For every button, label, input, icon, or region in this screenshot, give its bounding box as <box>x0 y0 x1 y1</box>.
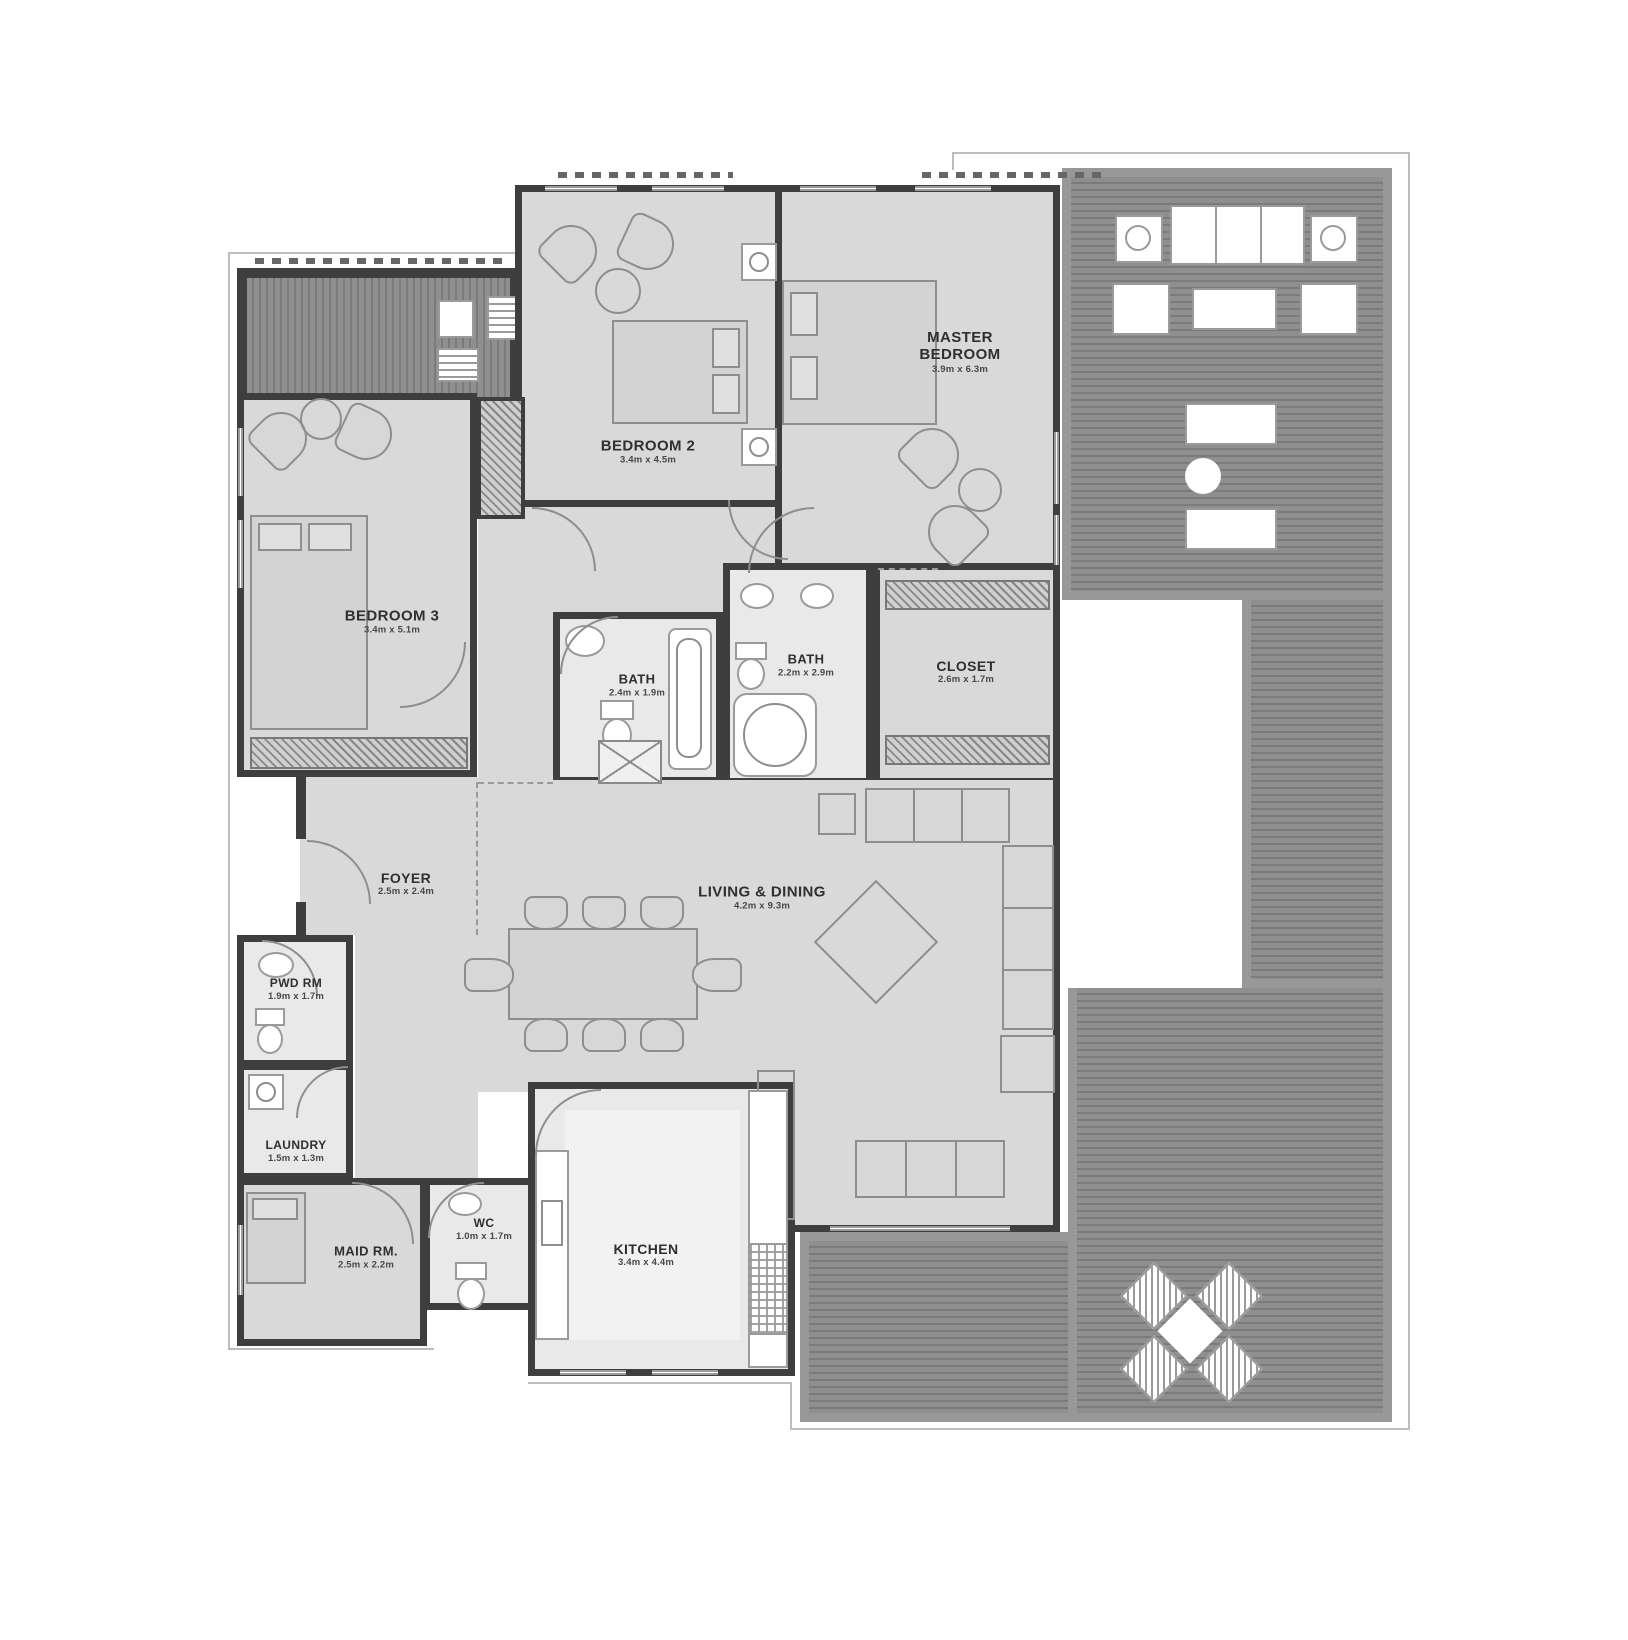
room-dims: 4.2m x 9.3m <box>698 902 826 913</box>
living-sofa-top <box>865 788 1010 843</box>
room-name: BEDROOM 3 <box>345 607 439 624</box>
window <box>238 1225 243 1295</box>
wardrobe-rail <box>885 735 1050 765</box>
label-living-dining: LIVING & DINING 4.2m x 9.3m <box>698 883 826 912</box>
terrace-planter <box>1115 215 1163 263</box>
room-name: MAID RM. <box>334 1244 398 1259</box>
floor-plan: MASTER BEDROOM 3.9m x 6.3m BEDROOM 2 3.4… <box>0 0 1628 1640</box>
dining-chair <box>464 958 514 992</box>
window <box>652 186 724 191</box>
window <box>1054 515 1059 565</box>
balcony-equipment-unit <box>438 300 474 338</box>
bedroom3-pillow <box>308 523 352 551</box>
bedroom3-side-table <box>300 398 342 440</box>
bathtub-basin <box>676 638 702 758</box>
room-dims: 2.5m x 2.2m <box>334 1261 398 1272</box>
property-line <box>228 252 230 1348</box>
master-pillow <box>790 292 818 336</box>
terrace-round-table <box>1185 458 1221 494</box>
terrace-coffee-table <box>1192 288 1277 330</box>
entry-wall <box>296 777 306 839</box>
terrace-deck-bottom <box>800 1232 1068 1422</box>
bedroom3-pillow <box>258 523 302 551</box>
stove-icon <box>748 1243 788 1335</box>
room-dims: 3.4m x 4.5m <box>601 456 695 467</box>
toilet-bowl <box>457 1278 485 1310</box>
property-line <box>952 152 954 170</box>
label-kitchen: KITCHEN 3.4m x 4.4m <box>613 1241 678 1269</box>
opening-dashed <box>878 568 938 572</box>
room-name: FOYER <box>381 870 431 886</box>
dining-table <box>508 928 698 1020</box>
bedroom2-side-table <box>595 268 641 314</box>
nightstand <box>741 243 777 281</box>
label-pwd: PWD RM 1.9m x 1.7m <box>268 977 324 1003</box>
room-dims: 3.4m x 4.4m <box>613 1258 678 1269</box>
toilet-icon <box>600 700 634 720</box>
window <box>800 186 876 191</box>
property-line <box>790 1382 792 1430</box>
dining-chair <box>640 896 684 930</box>
room-name: BATH <box>788 652 825 667</box>
window <box>915 186 991 191</box>
label-foyer: FOYER 2.5m x 2.4m <box>378 870 434 898</box>
washer-drum <box>256 1082 276 1102</box>
opening-dashed <box>476 782 480 935</box>
label-bedroom2: BEDROOM 2 3.4m x 4.5m <box>601 437 695 466</box>
plant-icon <box>1125 225 1151 251</box>
room-dims: 3.9m x 6.3m <box>894 364 1026 375</box>
railing <box>558 172 733 178</box>
entry-wall <box>296 902 306 940</box>
sliding-door <box>830 1226 1010 1231</box>
room-dims: 1.5m x 1.3m <box>265 1154 326 1165</box>
terrace-sun-lounger <box>1185 508 1277 550</box>
dining-chair <box>582 1018 626 1052</box>
dining-chair <box>692 958 742 992</box>
shaft-closet <box>477 397 525 519</box>
lamp-icon <box>749 437 769 457</box>
terrace-planter <box>1310 215 1358 263</box>
window <box>238 428 243 496</box>
room-dims: 1.9m x 1.7m <box>268 992 324 1003</box>
room-name: WC <box>474 1216 495 1230</box>
room-name: LAUNDRY <box>265 1138 326 1152</box>
sink-icon <box>800 583 834 609</box>
room-dims: 2.4m x 1.9m <box>609 689 665 700</box>
terrace-lounge-chair <box>1300 283 1358 335</box>
corridor-floor <box>355 935 478 1178</box>
plant-icon <box>1320 225 1346 251</box>
label-bath-master: BATH 2.2m x 2.9m <box>778 653 834 680</box>
bathtub <box>668 628 712 770</box>
opening-dashed <box>478 782 553 786</box>
bedroom2-pillow <box>712 328 740 368</box>
property-line <box>228 252 520 254</box>
room-name: PWD RM <box>270 976 322 990</box>
property-line <box>790 1428 1410 1430</box>
room-dims: 1.0m x 1.7m <box>456 1232 512 1243</box>
window <box>545 186 617 191</box>
railing <box>922 172 1107 178</box>
window <box>560 1370 626 1375</box>
dining-chair <box>640 1018 684 1052</box>
toilet-bowl <box>737 658 765 690</box>
bathtub <box>733 693 817 777</box>
dining-chair <box>524 1018 568 1052</box>
wardrobe-rail <box>250 737 468 769</box>
shower-hatch <box>598 740 662 784</box>
room-name: LIVING & DINING <box>698 883 826 900</box>
master-side-table <box>958 468 1002 512</box>
room-name: BATH <box>619 672 656 687</box>
toilet-bowl <box>257 1024 283 1054</box>
living-armchair <box>1000 1035 1055 1093</box>
window <box>652 1370 718 1375</box>
balcony-equipment-unit <box>437 348 479 382</box>
terrace-deck-right-strip <box>1242 600 1392 988</box>
terrace-sofa <box>1170 205 1305 265</box>
label-maid: MAID RM. 2.5m x 2.2m <box>334 1245 398 1272</box>
dining-chair <box>582 896 626 930</box>
sink-icon <box>740 583 774 609</box>
bedroom2-pillow <box>712 374 740 414</box>
room-name: MASTER BEDROOM <box>919 329 1000 363</box>
kitchen-sink-icon <box>541 1200 563 1246</box>
nightstand <box>741 428 777 466</box>
room-dims: 2.5m x 2.4m <box>378 887 434 898</box>
terrace-table <box>1185 403 1277 445</box>
room-dims: 3.4m x 5.1m <box>345 626 439 637</box>
room-dims: 2.2m x 2.9m <box>778 669 834 680</box>
living-sectional-sofa <box>1002 845 1054 1030</box>
terrace-lounge-chair <box>1112 283 1170 335</box>
dining-chair <box>524 896 568 930</box>
living-sofa-bottom <box>855 1140 1005 1198</box>
master-pillow <box>790 356 818 400</box>
label-bedroom3: BEDROOM 3 3.4m x 5.1m <box>345 607 439 636</box>
window <box>238 520 243 588</box>
property-line <box>952 152 1410 154</box>
room-name: CLOSET <box>936 658 995 674</box>
label-wc: WC 1.0m x 1.7m <box>456 1217 512 1243</box>
property-line <box>528 1382 790 1384</box>
window <box>1054 432 1059 504</box>
room-name: BEDROOM 2 <box>601 437 695 454</box>
washer-icon <box>248 1074 284 1110</box>
label-master-bedroom: MASTER BEDROOM 3.9m x 6.3m <box>894 329 1026 375</box>
wardrobe-rail <box>885 580 1050 610</box>
property-line <box>228 1348 434 1350</box>
label-bath-shared: BATH 2.4m x 1.9m <box>609 673 665 700</box>
railing <box>255 258 505 264</box>
living-cabinet <box>818 793 856 835</box>
room-name: KITCHEN <box>613 1241 678 1257</box>
property-line <box>1408 152 1410 1430</box>
bathtub-basin <box>743 703 807 767</box>
label-closet: CLOSET 2.6m x 1.7m <box>936 658 995 686</box>
label-laundry: LAUNDRY 1.5m x 1.3m <box>265 1139 326 1165</box>
maid-pillow <box>252 1198 298 1220</box>
room-dims: 2.6m x 1.7m <box>936 675 995 686</box>
lamp-icon <box>749 252 769 272</box>
